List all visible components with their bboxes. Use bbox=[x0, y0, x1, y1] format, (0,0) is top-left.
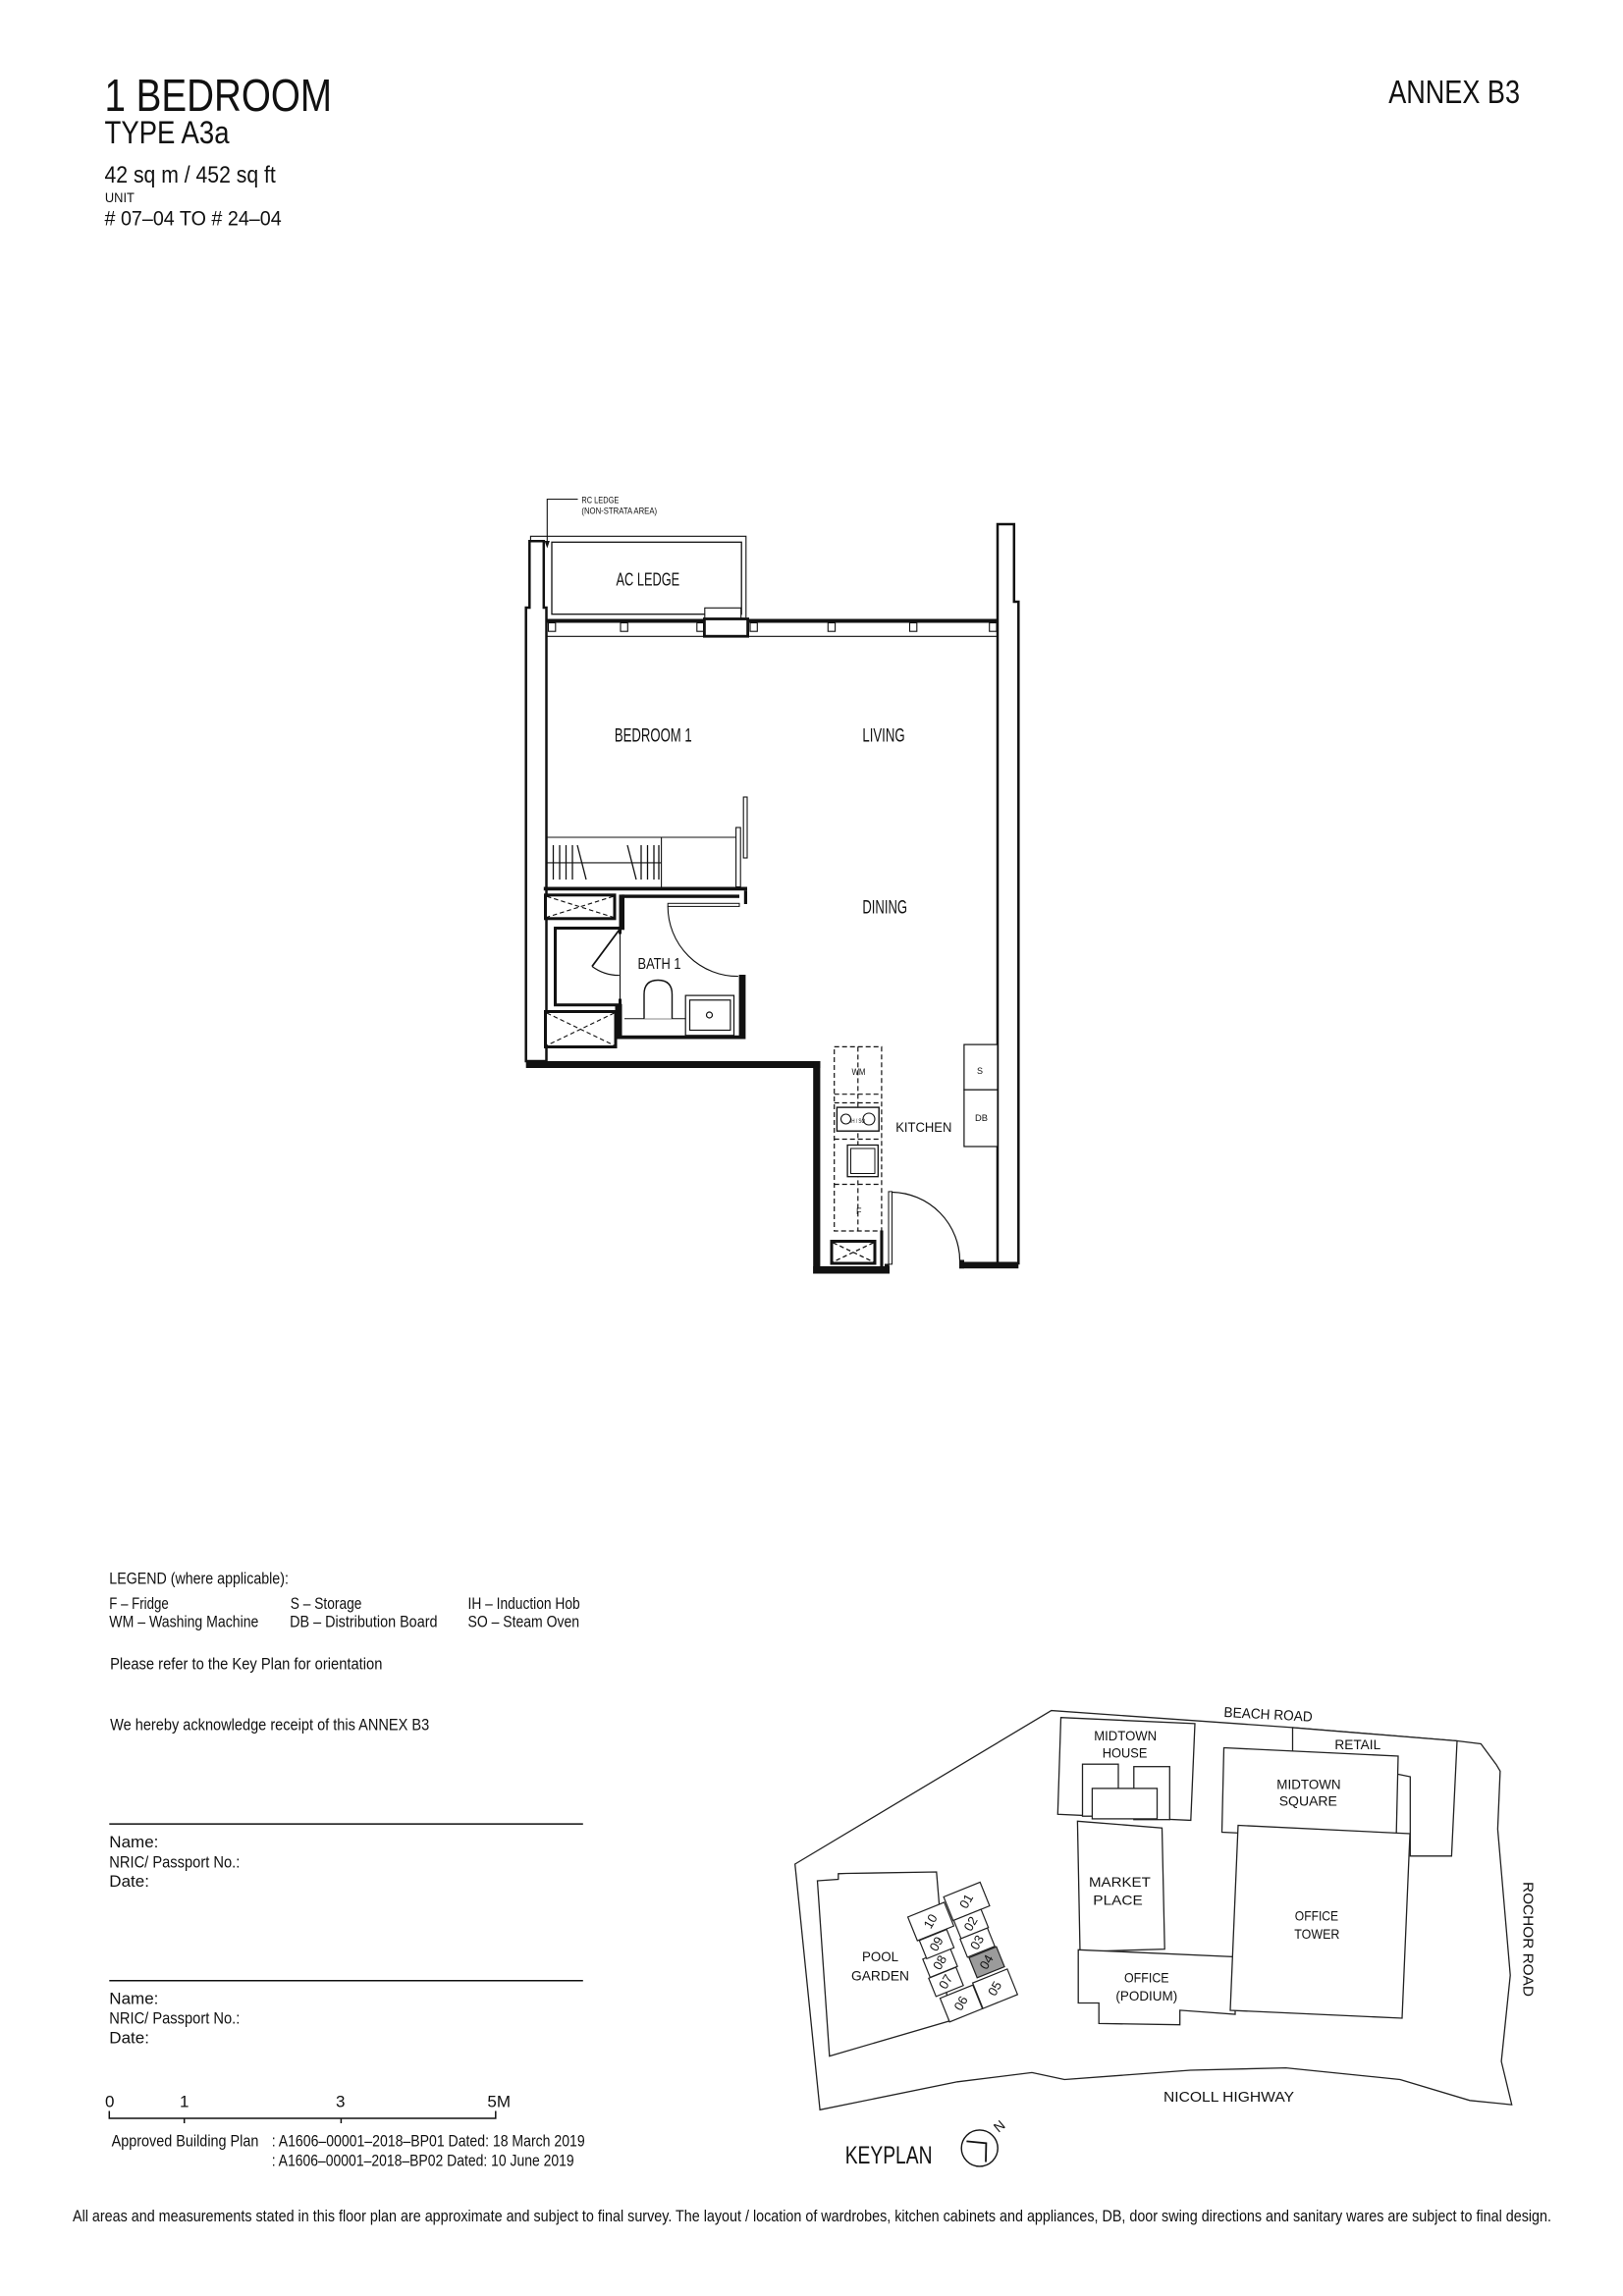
svg-text:We hereby acknowledge receipt: We hereby acknowledge receipt of this AN… bbox=[110, 1715, 429, 1734]
svg-text:OFFICE: OFFICE bbox=[1295, 1908, 1338, 1924]
svg-text:S – Storage: S – Storage bbox=[291, 1594, 362, 1613]
svg-text:NRIC/ Passport No.:: NRIC/ Passport No.: bbox=[109, 2009, 240, 2028]
svg-text:1: 1 bbox=[180, 2092, 189, 2110]
svg-text:POOL: POOL bbox=[862, 1949, 898, 1964]
svg-text:GARDEN: GARDEN bbox=[851, 1968, 909, 1984]
svg-text:All areas and measurements sta: All areas and measurements stated in thi… bbox=[73, 2207, 1551, 2225]
svg-text:BATH 1: BATH 1 bbox=[638, 956, 681, 973]
svg-text:DB – Distribution Board: DB – Distribution Board bbox=[290, 1612, 437, 1630]
svg-text:1 BEDROOM: 1 BEDROOM bbox=[105, 70, 333, 121]
svg-text:TYPE A3a: TYPE A3a bbox=[105, 115, 230, 150]
svg-text:# 07–04 TO # 24–04: # 07–04 TO # 24–04 bbox=[105, 208, 282, 231]
svg-text:SQUARE: SQUARE bbox=[1279, 1793, 1337, 1809]
svg-text:F: F bbox=[856, 1206, 862, 1216]
svg-text:KITCHEN: KITCHEN bbox=[895, 1119, 951, 1135]
svg-text:5M: 5M bbox=[487, 2092, 511, 2110]
svg-text:TOWER: TOWER bbox=[1294, 1926, 1339, 1942]
svg-text:NRIC/ Passport No.:: NRIC/ Passport No.: bbox=[109, 1852, 240, 1871]
svg-text:ROCHOR ROAD: ROCHOR ROAD bbox=[1520, 1882, 1536, 1997]
svg-text:ANNEX B3: ANNEX B3 bbox=[1388, 74, 1520, 110]
svg-text:MIDTOWN: MIDTOWN bbox=[1276, 1776, 1340, 1791]
svg-text:Name:: Name: bbox=[109, 1833, 158, 1851]
svg-text:: A1606–00001–2018–BP02 Dated: : A1606–00001–2018–BP02 Dated: 10 June 2… bbox=[272, 2151, 574, 2169]
svg-text:IH / SO: IH / SO bbox=[850, 1118, 865, 1125]
svg-text:0: 0 bbox=[105, 2092, 114, 2110]
svg-text:PLACE: PLACE bbox=[1093, 1892, 1143, 1907]
svg-text:LIVING: LIVING bbox=[862, 725, 904, 746]
svg-text:DB: DB bbox=[975, 1113, 988, 1123]
svg-text:(NON-STRATA AREA): (NON-STRATA AREA) bbox=[581, 507, 657, 517]
svg-text:HOUSE: HOUSE bbox=[1103, 1744, 1148, 1760]
svg-text:SO – Steam Oven: SO – Steam Oven bbox=[468, 1612, 580, 1630]
svg-text:Name:: Name: bbox=[109, 1989, 158, 2007]
svg-text:: A1606–00001–2018–BP01 Dated: : A1606–00001–2018–BP01 Dated: 18 March … bbox=[272, 2131, 585, 2150]
svg-text:NICOLL HIGHWAY: NICOLL HIGHWAY bbox=[1163, 2090, 1294, 2106]
svg-text:AC LEDGE: AC LEDGE bbox=[617, 569, 680, 589]
svg-text:MARKET: MARKET bbox=[1089, 1874, 1151, 1890]
svg-text:(PODIUM): (PODIUM) bbox=[1115, 1988, 1177, 2003]
svg-text:DINING: DINING bbox=[862, 898, 907, 919]
svg-text:BEDROOM 1: BEDROOM 1 bbox=[615, 725, 692, 746]
svg-text:S: S bbox=[977, 1066, 983, 1076]
svg-text:WM: WM bbox=[852, 1067, 866, 1077]
svg-text:Approved Building Plan: Approved Building Plan bbox=[112, 2131, 259, 2150]
svg-text:KEYPLAN: KEYPLAN bbox=[845, 2142, 933, 2169]
svg-text:Date:: Date: bbox=[109, 2029, 149, 2048]
svg-text:RETAIL: RETAIL bbox=[1334, 1736, 1380, 1752]
svg-text:WM – Washing Machine: WM – Washing Machine bbox=[109, 1612, 258, 1630]
svg-text:Date:: Date: bbox=[109, 1872, 149, 1891]
svg-text:42 sq m / 452 sq ft: 42 sq m / 452 sq ft bbox=[105, 162, 277, 188]
svg-text:Please refer to the Key Plan f: Please refer to the Key Plan for orienta… bbox=[110, 1655, 382, 1674]
svg-text:IH – Induction Hob: IH – Induction Hob bbox=[468, 1594, 580, 1613]
svg-text:3: 3 bbox=[336, 2092, 345, 2110]
svg-text:RC LEDGE: RC LEDGE bbox=[581, 495, 619, 506]
svg-text:MIDTOWN: MIDTOWN bbox=[1094, 1728, 1157, 1743]
svg-text:OFFICE: OFFICE bbox=[1124, 1970, 1169, 1986]
svg-text:UNIT: UNIT bbox=[105, 189, 135, 205]
svg-text:LEGEND (where applicable):: LEGEND (where applicable): bbox=[109, 1570, 289, 1588]
svg-text:F – Fridge: F – Fridge bbox=[109, 1594, 168, 1613]
